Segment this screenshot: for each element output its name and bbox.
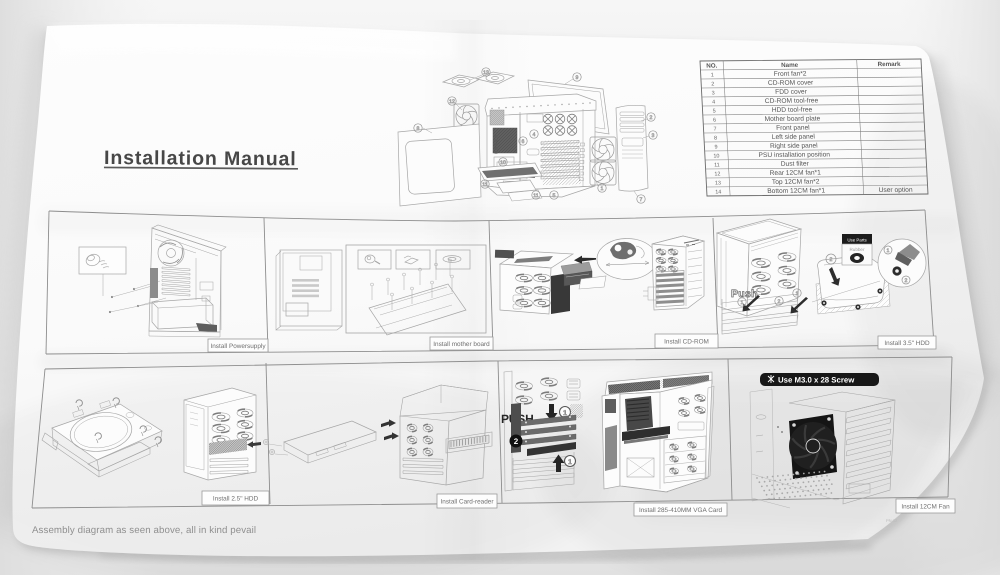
svg-text:Rubber: Rubber <box>849 247 865 252</box>
svg-text:Install CD-ROM: Install CD-ROM <box>664 338 709 345</box>
svg-text:Right side panel: Right side panel <box>770 142 818 149</box>
svg-text:12: 12 <box>449 99 455 105</box>
svg-text:FDD cover: FDD cover <box>775 89 808 96</box>
svg-text:HDD tool-free: HDD tool-free <box>772 107 813 114</box>
svg-text:Left side panel: Left side panel <box>772 134 816 141</box>
svg-text:5: 5 <box>713 108 716 114</box>
svg-text:Use Parts: Use Parts <box>847 238 867 243</box>
svg-text:4: 4 <box>712 99 715 105</box>
svg-text:Top 12CM fan*2: Top 12CM fan*2 <box>772 178 820 185</box>
svg-text:12: 12 <box>714 171 720 177</box>
svg-text:11: 11 <box>482 182 487 188</box>
svg-text:Install 3.5" HDD: Install 3.5" HDD <box>884 340 930 347</box>
svg-text:2: 2 <box>650 115 653 121</box>
svg-text:Assembly diagram as seen above: Assembly diagram as seen above, all in k… <box>32 525 256 536</box>
svg-text:10: 10 <box>500 160 506 166</box>
svg-text:Install 2.5" HDD: Install 2.5" HDD <box>213 495 259 502</box>
svg-text:9: 9 <box>714 144 717 150</box>
svg-text:3: 3 <box>652 133 655 139</box>
svg-text:Install Powersupply: Install Powersupply <box>210 343 266 350</box>
svg-text:1: 1 <box>887 248 890 254</box>
svg-text:8: 8 <box>417 126 420 132</box>
svg-text:Install mother board: Install mother board <box>433 341 490 348</box>
svg-text:1: 1 <box>711 72 714 78</box>
svg-text:2: 2 <box>778 299 781 305</box>
svg-text:4: 4 <box>533 132 536 138</box>
svg-text:8: 8 <box>714 135 717 141</box>
svg-text:PN-12: PN-12 <box>886 518 898 523</box>
svg-text:Front panel: Front panel <box>776 125 810 132</box>
svg-text:2: 2 <box>514 437 519 446</box>
svg-text:1: 1 <box>568 459 572 466</box>
svg-text:2: 2 <box>905 278 908 284</box>
svg-text:5: 5 <box>553 193 556 199</box>
svg-text:3: 3 <box>712 90 715 96</box>
svg-text:Mother board plate: Mother board plate <box>764 115 820 123</box>
svg-text:1: 1 <box>741 300 744 306</box>
svg-text:PSU installation position: PSU installation position <box>758 151 830 159</box>
svg-text:10: 10 <box>713 153 719 159</box>
svg-text:Remark: Remark <box>878 61 902 68</box>
svg-text:13: 13 <box>483 70 489 76</box>
svg-text:CD-ROM tool-free: CD-ROM tool-free <box>765 97 819 105</box>
svg-text:CD-ROM cover: CD-ROM cover <box>768 79 814 86</box>
svg-text:1: 1 <box>601 186 604 192</box>
svg-text:Rear 12CM fan*1: Rear 12CM fan*1 <box>769 169 821 177</box>
svg-text:11: 11 <box>714 162 720 168</box>
svg-text:7: 7 <box>713 126 716 132</box>
svg-text:Bottom 12CM fan*1: Bottom 12CM fan*1 <box>767 187 825 195</box>
svg-text:Install 285-410MM VGA Card: Install 285-410MM VGA Card <box>639 507 723 514</box>
svg-text:2: 2 <box>711 81 714 87</box>
svg-text:Name: Name <box>781 62 799 69</box>
svg-text:1: 1 <box>796 291 799 297</box>
svg-text:Install 12CM Fan: Install 12CM Fan <box>901 503 950 510</box>
svg-text:9: 9 <box>576 75 579 81</box>
svg-text:2: 2 <box>830 257 833 263</box>
svg-text:Dust filter: Dust filter <box>781 161 810 168</box>
svg-text:NO.: NO. <box>706 63 718 70</box>
svg-text:11: 11 <box>533 193 538 199</box>
svg-text:Install Card-reader: Install Card-reader <box>441 498 495 505</box>
svg-text:Use M3.0 x 28 Screw: Use M3.0 x 28 Screw <box>778 376 855 385</box>
svg-text:7: 7 <box>640 197 643 203</box>
svg-text:6: 6 <box>713 117 716 123</box>
svg-text:User option: User option <box>879 187 914 194</box>
svg-text:14: 14 <box>715 189 721 195</box>
svg-text:Front fan*2: Front fan*2 <box>774 71 807 78</box>
svg-text:13: 13 <box>715 180 721 186</box>
svg-text:6: 6 <box>522 139 525 145</box>
